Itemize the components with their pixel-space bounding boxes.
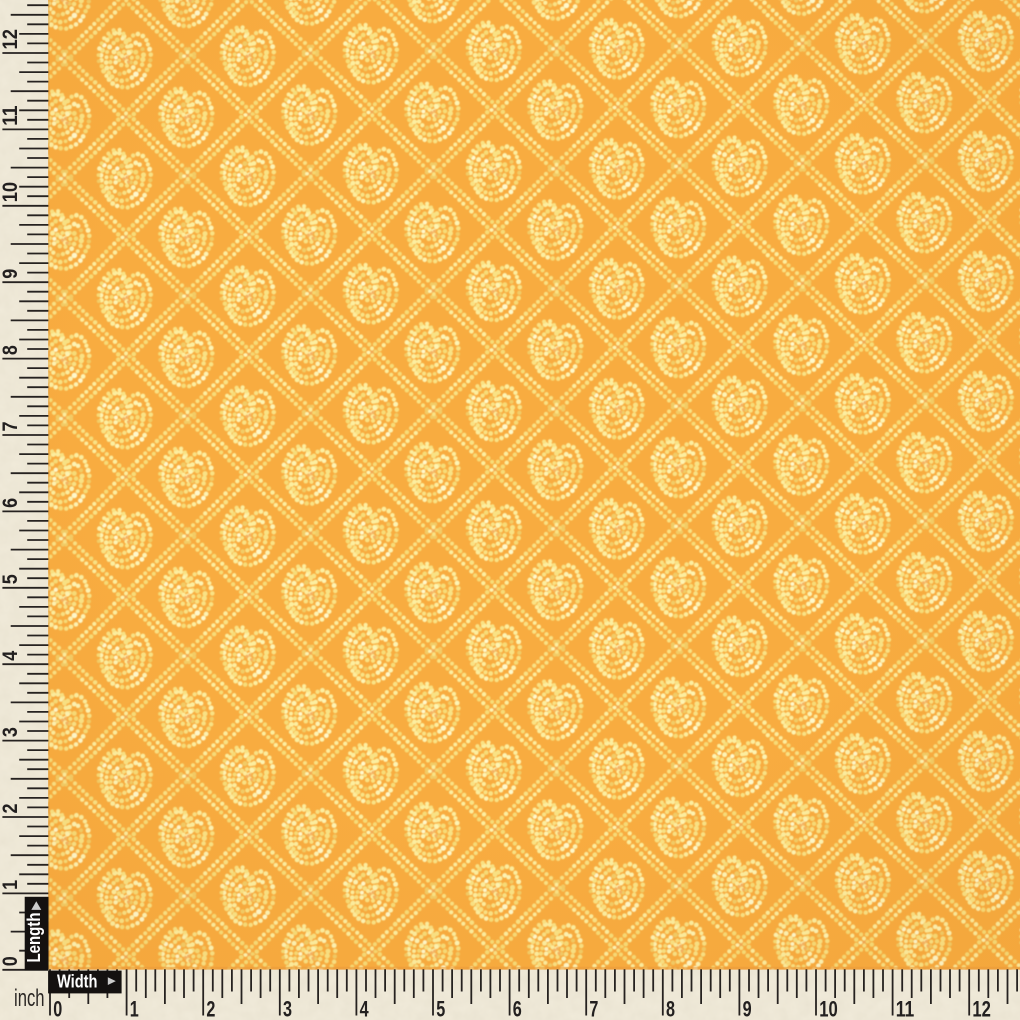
svg-text:2: 2 — [0, 804, 22, 814]
svg-text:11: 11 — [896, 997, 915, 1020]
svg-text:9: 9 — [0, 269, 22, 279]
svg-text:12: 12 — [972, 997, 991, 1020]
svg-text:0: 0 — [53, 997, 62, 1020]
svg-text:10: 10 — [819, 997, 838, 1020]
svg-text:10: 10 — [0, 182, 22, 202]
svg-text:6: 6 — [0, 498, 22, 508]
svg-text:0: 0 — [0, 956, 22, 966]
svg-text:8: 8 — [0, 345, 22, 355]
svg-text:1: 1 — [0, 880, 22, 890]
svg-text:6: 6 — [513, 997, 522, 1020]
svg-text:8: 8 — [666, 997, 675, 1020]
svg-text:12: 12 — [0, 29, 22, 49]
svg-text:7: 7 — [0, 422, 22, 432]
svg-text:11: 11 — [0, 105, 22, 126]
svg-text:9: 9 — [743, 997, 752, 1020]
svg-text:7: 7 — [589, 997, 598, 1020]
svg-text:5: 5 — [0, 574, 22, 584]
svg-text:5: 5 — [436, 997, 445, 1020]
svg-text:inch: inch — [14, 985, 45, 1012]
svg-text:1: 1 — [130, 997, 139, 1020]
svg-text:3: 3 — [283, 997, 292, 1020]
svg-text:Length: Length — [24, 913, 44, 963]
svg-text:Width: Width — [57, 971, 98, 991]
svg-text:4: 4 — [0, 650, 22, 660]
svg-text:3: 3 — [0, 727, 22, 737]
svg-text:2: 2 — [206, 997, 215, 1020]
svg-text:4: 4 — [360, 997, 369, 1020]
